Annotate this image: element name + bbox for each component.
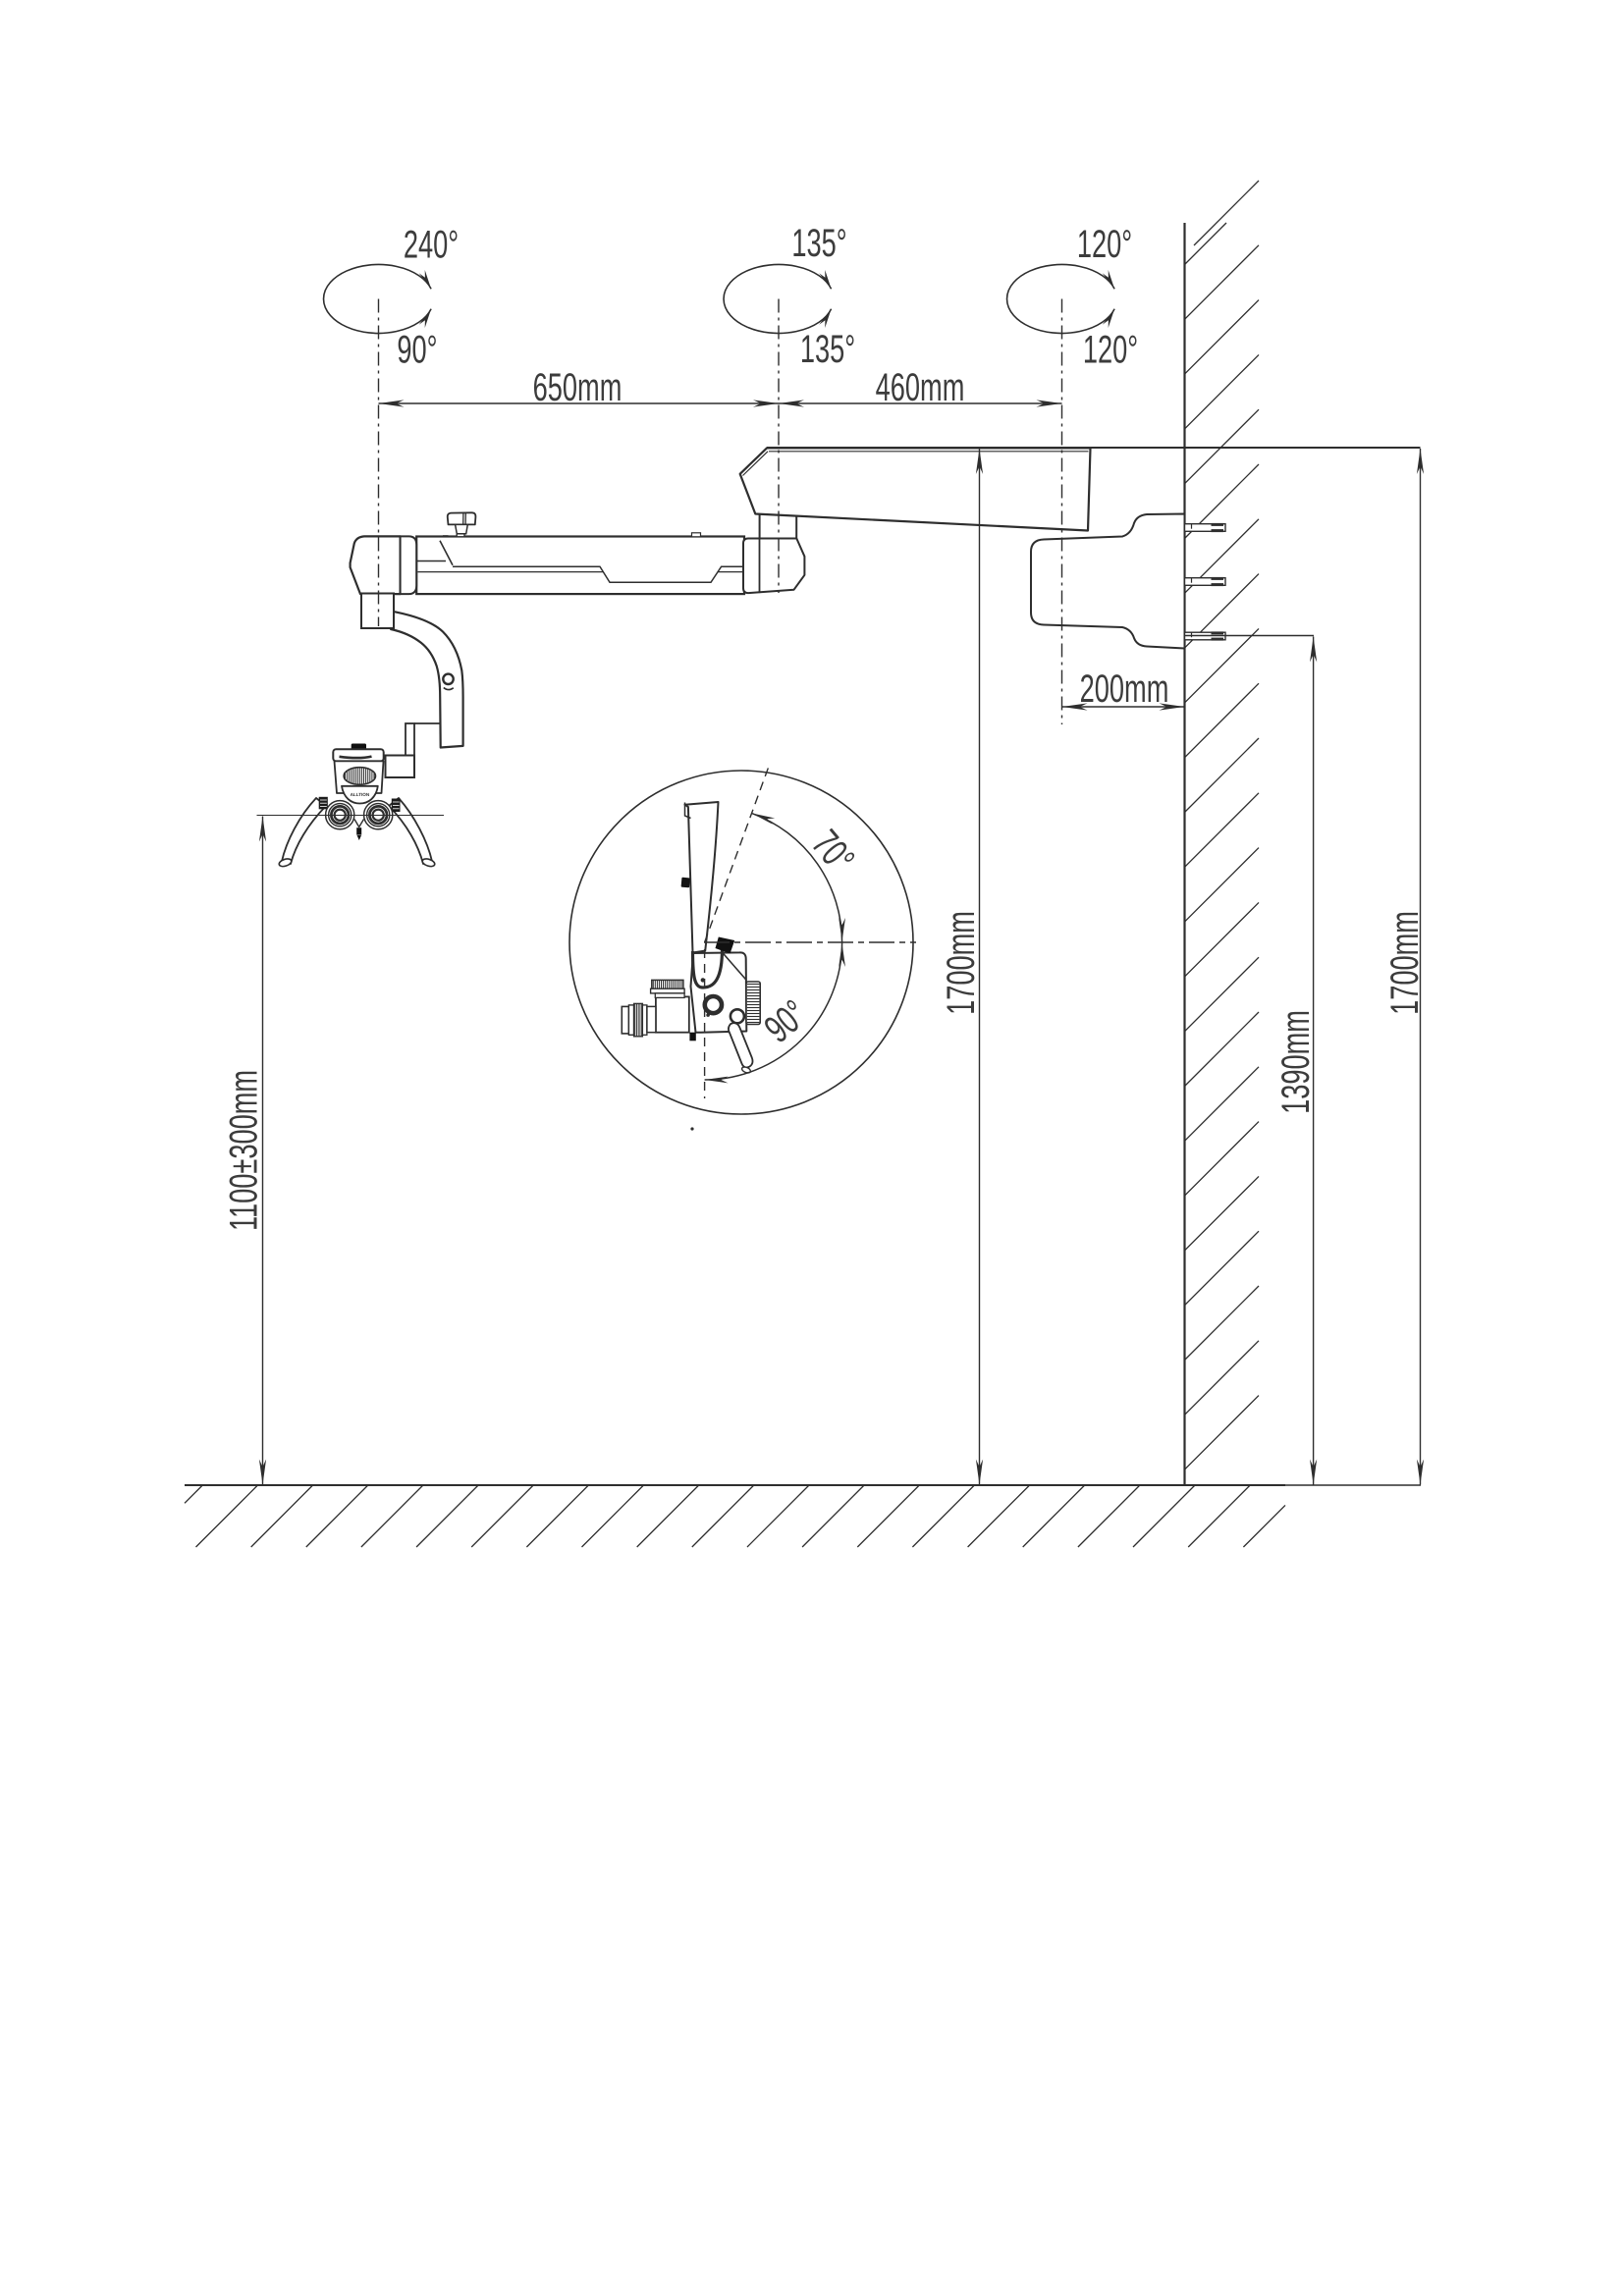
- svg-text:240°: 240°: [404, 224, 459, 267]
- svg-text:1100±300mm: 1100±300mm: [223, 1070, 266, 1231]
- svg-text:650mm: 650mm: [533, 366, 623, 409]
- svg-text:1390mm: 1390mm: [1274, 1010, 1318, 1114]
- svg-text:1700mm: 1700mm: [1383, 911, 1427, 1015]
- svg-text:120°: 120°: [1083, 329, 1138, 372]
- svg-text:460mm: 460mm: [876, 366, 965, 409]
- svg-text:120°: 120°: [1077, 223, 1132, 266]
- svg-text:ALLTION: ALLTION: [351, 792, 370, 797]
- svg-text:135°: 135°: [791, 222, 846, 265]
- svg-text:1700mm: 1700mm: [940, 911, 983, 1015]
- svg-text:90°: 90°: [397, 329, 437, 372]
- svg-text:135°: 135°: [800, 328, 855, 371]
- svg-text:200mm: 200mm: [1080, 667, 1169, 711]
